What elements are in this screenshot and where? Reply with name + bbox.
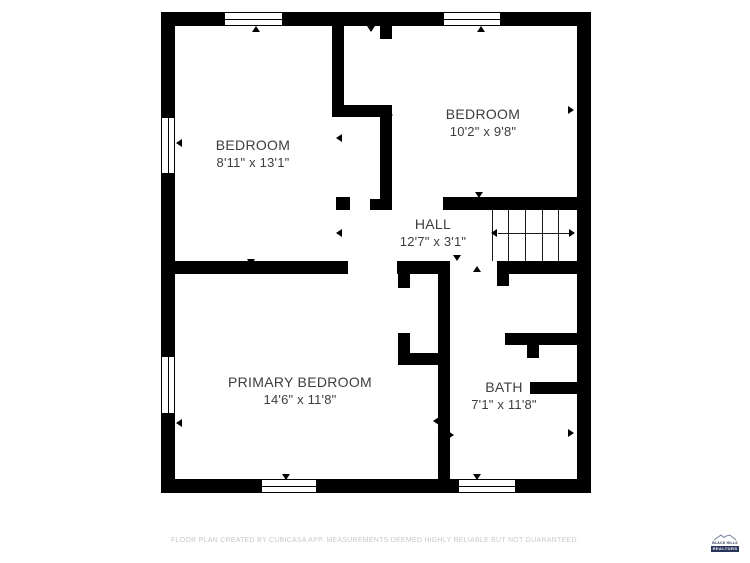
wall-bedrooms-divider-lower (380, 105, 392, 199)
wall-bath-closet-stub (527, 345, 539, 358)
room-name: BEDROOM (446, 106, 520, 123)
room-dims: 8'11" x 13'1" (216, 154, 290, 171)
opening-arrow-icon (448, 431, 454, 439)
stair-tread (542, 210, 543, 261)
wall-divider-foot (370, 199, 392, 210)
disclaimer-text: FLOOR PLAN CREATED BY CUBICASA APP. MEAS… (0, 537, 750, 544)
room-label-hall: HALL 12'7" x 3'1" (400, 216, 466, 250)
wall-understair-closet-bottom (505, 333, 578, 345)
mountain-icon (713, 533, 737, 541)
opening-arrow-icon (568, 429, 574, 437)
room-label-bedroom-2: BEDROOM 10'2" x 9'8" (446, 106, 520, 140)
opening-arrow-icon (387, 111, 393, 119)
window-symbol-top-left (224, 12, 283, 26)
room-dims: 10'2" x 9'8" (446, 123, 520, 140)
wall-bedroom1-bottom (175, 261, 348, 274)
opening-arrow-icon (473, 474, 481, 480)
wall-hall-left-cap (336, 197, 350, 210)
room-name: PRIMARY BEDROOM (228, 374, 372, 391)
opening-arrow-icon (283, 267, 291, 273)
opening-arrow-icon (454, 203, 462, 209)
room-dims: 14'6" x 11'8" (228, 391, 372, 408)
opening-arrow-icon (477, 26, 485, 32)
opening-arrow-icon (568, 106, 574, 114)
window-symbol-top-right (443, 12, 501, 26)
window-symbol-bottom-right (458, 479, 516, 493)
opening-arrow-icon (176, 139, 182, 147)
window-symbol-bottom-left (261, 479, 317, 493)
opening-arrow-icon (475, 192, 483, 198)
window-symbol-left-lower (161, 356, 175, 414)
wall-primary-bath-divider (438, 261, 450, 480)
opening-arrow-icon (282, 474, 290, 480)
room-dims: 7'1" x 11'8" (471, 396, 537, 413)
room-name: HALL (400, 216, 466, 233)
room-name: BATH (471, 379, 537, 396)
wall-bedrooms-divider-upper (332, 26, 344, 117)
wall-hall-bottom-right (497, 261, 591, 274)
floor-plan: BEDROOM 8'11" x 13'1" BEDROOM 10'2" x 9'… (0, 0, 750, 563)
stairs-arrowhead-left-icon (491, 229, 497, 237)
realtor-logo: BLACK HILLS REALTORS (711, 533, 739, 552)
opening-arrow-icon (247, 259, 255, 265)
window-symbol-left-upper (161, 117, 175, 174)
opening-arrow-icon (176, 419, 182, 427)
stair-tread (508, 210, 509, 261)
wall-hall-top (443, 197, 591, 210)
opening-arrow-icon (336, 134, 342, 142)
room-dims: 12'7" x 3'1" (400, 233, 466, 250)
logo-realtors-text: REALTORS (711, 546, 739, 552)
wall-primary-closet-bottom (398, 353, 450, 365)
opening-arrow-icon (433, 417, 439, 425)
room-label-bath: BATH 7'1" x 11'8" (471, 379, 537, 413)
stair-tread (525, 210, 526, 261)
wall-primary-closet-stub-top (398, 274, 410, 288)
opening-arrow-icon (367, 26, 375, 32)
wall-bath-closet-bottom (530, 382, 578, 394)
opening-arrow-icon (252, 26, 260, 32)
wall-outer-right (577, 12, 591, 493)
wall-bath-stub-top (497, 274, 509, 286)
room-name: BEDROOM (216, 137, 290, 154)
stair-tread (558, 210, 559, 261)
opening-arrow-icon (473, 266, 481, 272)
opening-arrow-icon (336, 229, 342, 237)
wall-closet-door-jamb (380, 26, 392, 39)
wall-outer-bottom (161, 479, 591, 493)
room-label-primary-bedroom: PRIMARY BEDROOM 14'6" x 11'8" (228, 374, 372, 408)
room-label-bedroom-1: BEDROOM 8'11" x 13'1" (216, 137, 290, 171)
stairs-direction-arrow (498, 233, 570, 234)
logo-name-text: BLACK HILLS (711, 541, 739, 545)
opening-arrow-icon (453, 255, 461, 261)
stairs-arrowhead-right-icon (569, 229, 575, 237)
wall-outer-left (161, 12, 175, 493)
